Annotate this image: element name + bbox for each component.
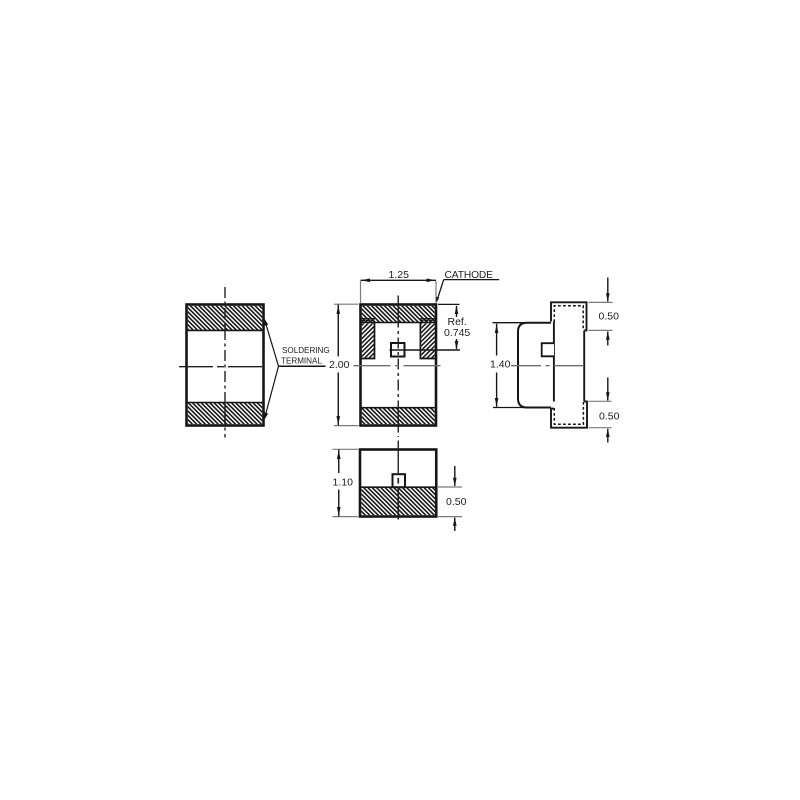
svg-text:0.50: 0.50	[599, 311, 620, 323]
svg-text:0.745: 0.745	[444, 327, 470, 339]
svg-text:SOLDERING: SOLDERING	[282, 346, 330, 355]
svg-text:1.10: 1.10	[333, 476, 354, 488]
svg-text:0.50: 0.50	[599, 411, 620, 423]
svg-text:TERMINAL: TERMINAL	[281, 357, 322, 366]
svg-text:1.25: 1.25	[389, 269, 410, 281]
svg-text:2.00: 2.00	[329, 359, 350, 371]
svg-text:0.50: 0.50	[446, 496, 467, 508]
svg-text:1.40: 1.40	[490, 359, 511, 371]
